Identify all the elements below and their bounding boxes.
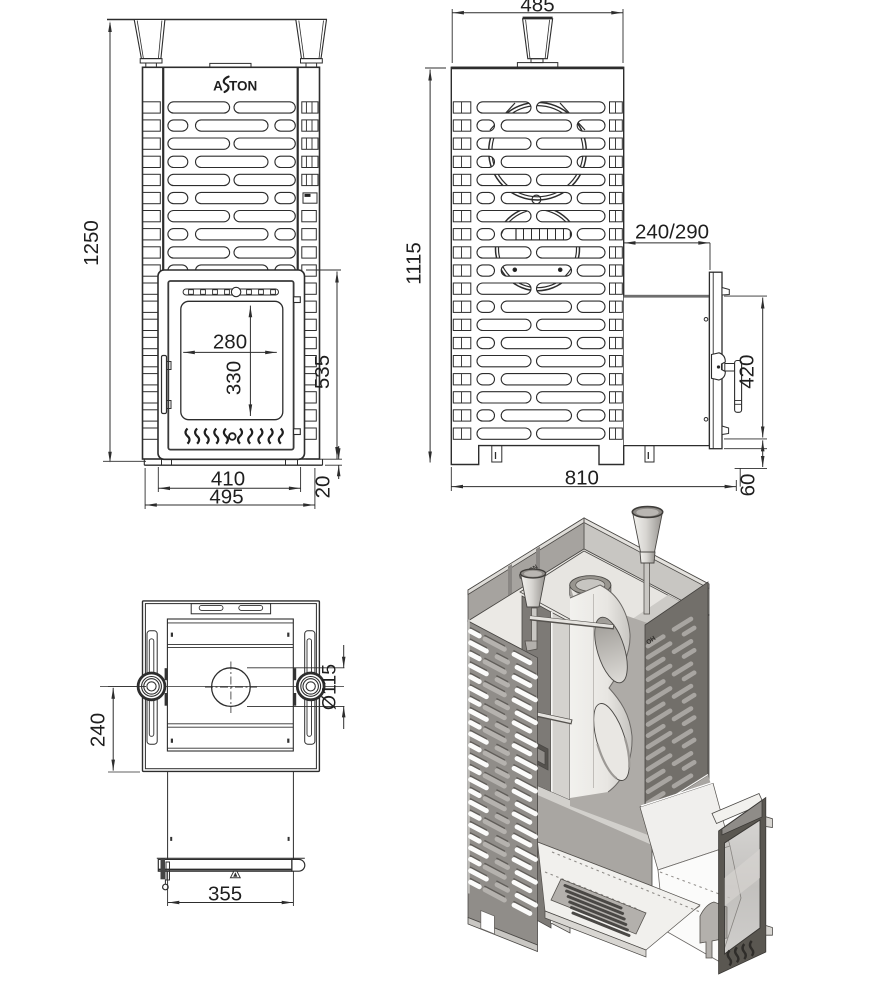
svg-text:330: 330 xyxy=(223,361,246,395)
svg-text:280: 280 xyxy=(213,331,247,354)
svg-text:Ø115: Ø115 xyxy=(319,664,341,710)
svg-text:810: 810 xyxy=(565,467,599,490)
svg-text:TON: TON xyxy=(229,79,257,94)
svg-text:535: 535 xyxy=(311,355,334,389)
svg-text:60: 60 xyxy=(737,474,760,497)
svg-text:240/290: 240/290 xyxy=(635,220,709,243)
svg-text:240: 240 xyxy=(87,713,110,747)
svg-text:1250: 1250 xyxy=(80,220,103,266)
svg-text:1115: 1115 xyxy=(403,242,426,285)
svg-text:420: 420 xyxy=(736,355,759,389)
svg-text:485: 485 xyxy=(520,0,554,17)
svg-text:A: A xyxy=(213,79,223,94)
svg-text:355: 355 xyxy=(208,883,242,906)
svg-text:495: 495 xyxy=(209,486,243,509)
